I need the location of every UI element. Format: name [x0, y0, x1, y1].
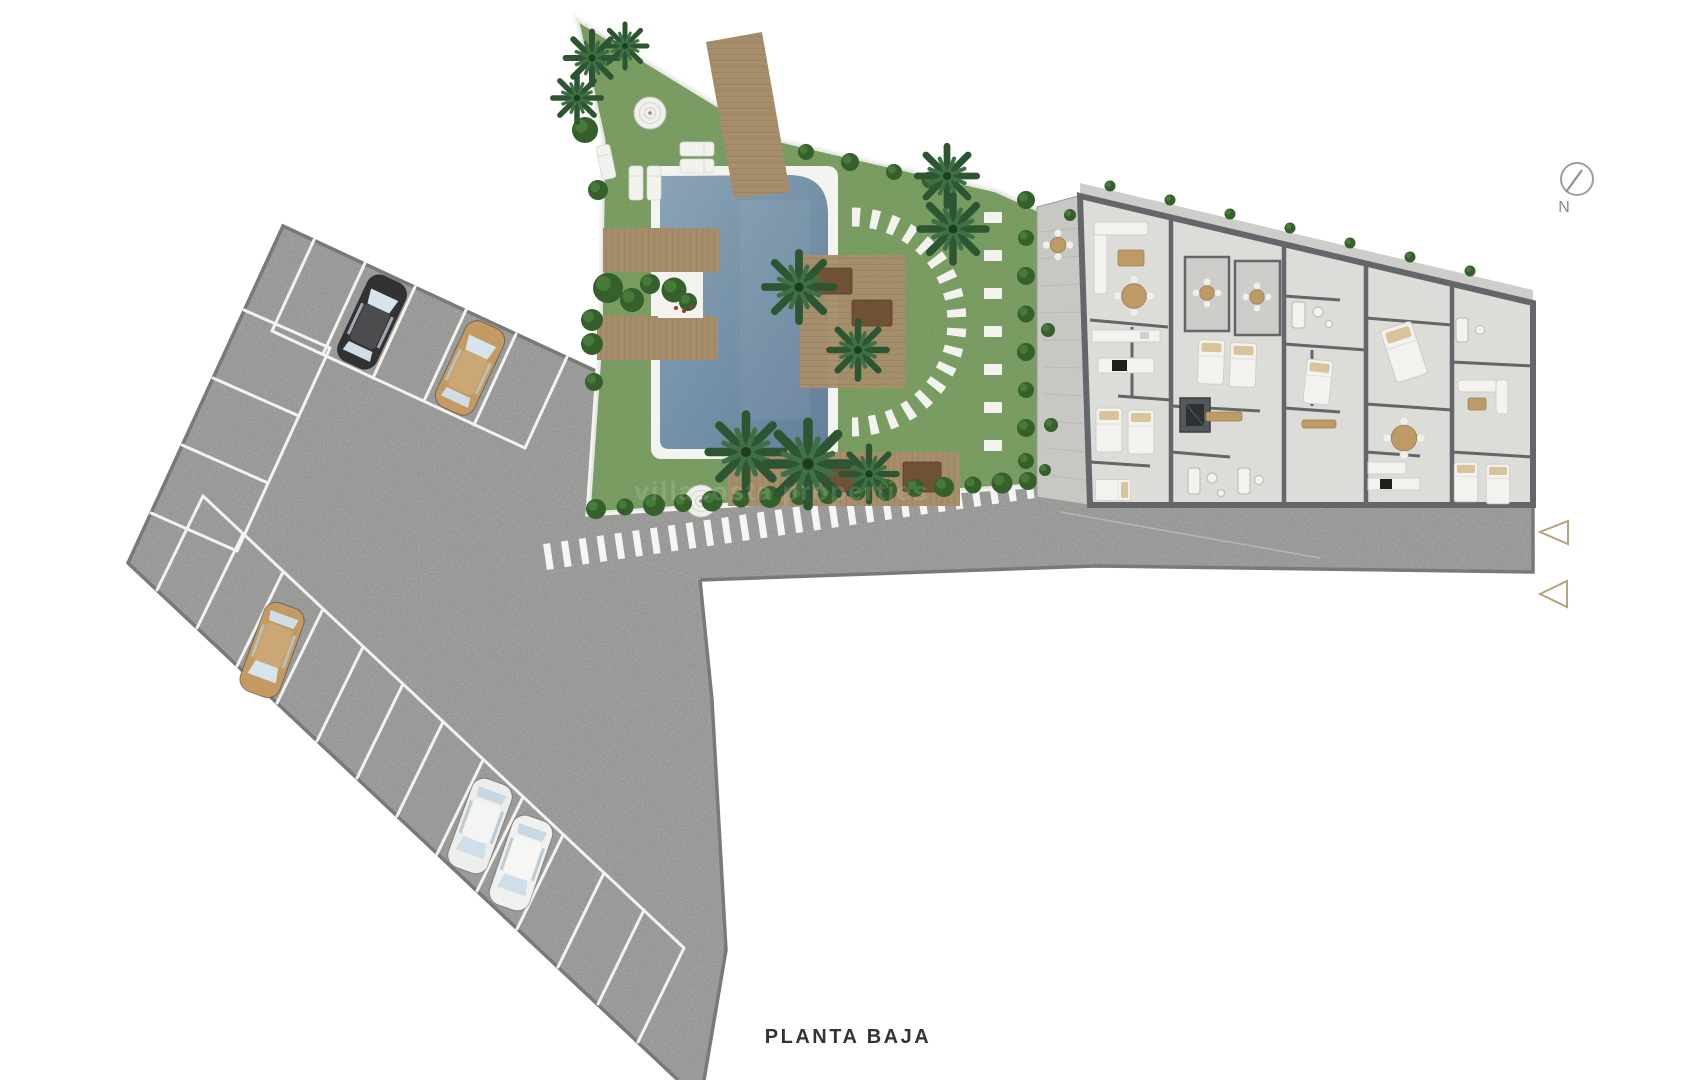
page-title: PLANTA BAJA	[765, 1026, 931, 1048]
screenshot-root: N villacosta properties PLANTA BAJA	[0, 0, 1700, 1080]
parasol-icon	[634, 97, 666, 129]
compass-north-label: N	[1558, 199, 1570, 216]
deck-left-a	[603, 228, 720, 272]
stair-core	[1180, 398, 1210, 432]
site-plan: N villacosta properties PLANTA BAJA	[0, 0, 1700, 1080]
watermark: villacosta properties	[635, 476, 930, 506]
planter	[658, 272, 703, 318]
deck-left-b	[597, 316, 718, 360]
